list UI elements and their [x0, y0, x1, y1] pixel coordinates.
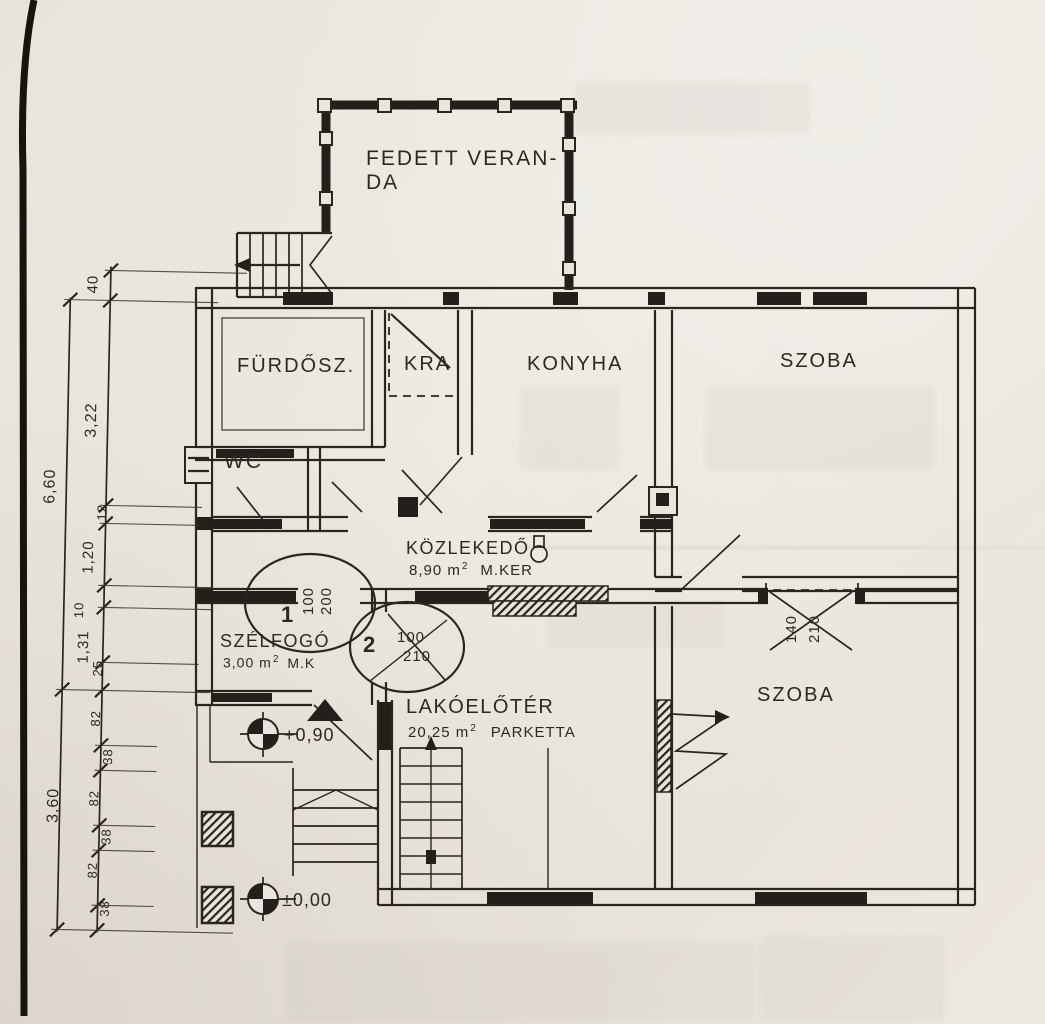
dim-660: 6,60 — [41, 468, 59, 503]
door1-number: 1 — [281, 602, 294, 627]
interior-walls-upper — [195, 310, 677, 577]
room-label-pantry: KRA — [404, 353, 451, 376]
dim-40: 40 — [84, 275, 101, 294]
hall-area-sup: 2 — [462, 561, 469, 572]
door3-width: 140 — [783, 615, 800, 643]
door1-height: 200 — [318, 587, 335, 615]
door2-height: 210 — [403, 648, 431, 665]
corridor-top-wall — [212, 457, 672, 531]
lamp-icon — [531, 536, 547, 562]
windbreak-area-sup: 2 — [273, 654, 280, 665]
room-label-hall: KÖZLEKEDŐ — [406, 538, 530, 559]
dim-38: 38 — [98, 828, 113, 845]
floor-plan-page: 40 3,22 12 1,20 10 1,31 25 6,60 3,60 82 … — [0, 0, 1045, 1024]
dim-82: 82 — [88, 710, 103, 727]
dim-38: 38 — [100, 748, 115, 765]
dim-38: 38 — [97, 900, 112, 917]
room-label-veranda: FEDETT VERAN- DA — [366, 147, 558, 195]
dim-131: 1,31 — [75, 630, 93, 664]
room-label-room-top: SZOBA — [780, 350, 858, 373]
room-label-room-bottom: SZOBA — [757, 684, 835, 707]
dim-82: 82 — [85, 862, 100, 879]
door2-number: 2 — [363, 632, 376, 657]
windbreak-finish: M.K — [287, 655, 315, 671]
hall-area-value: 8,90 m — [409, 562, 461, 579]
room-label-foyer: LAKÓELŐTÉR — [406, 696, 554, 719]
hall-finish: M.KER — [480, 562, 533, 579]
room-label-windbreak: SZÉLFOGÓ — [220, 631, 330, 652]
room-label-wc: WC — [224, 450, 263, 474]
dim-25: 25 — [90, 660, 105, 677]
hall-area: 8,90 m2M.KER — [409, 561, 533, 579]
foyer-finish: PARKETTA — [491, 724, 576, 741]
foyer-area-value: 20,25 m — [408, 724, 469, 741]
page-edge — [22, 0, 34, 1016]
room-label-bathroom: FÜRDŐSZ. — [237, 355, 355, 378]
level-entry: +0,90 — [284, 725, 335, 745]
room-label-kitchen: KONYHA — [527, 353, 623, 376]
dim-12: 12 — [94, 504, 109, 521]
bottom-room-wall — [655, 606, 730, 889]
veranda-line2: DA — [366, 171, 558, 195]
dim-82: 82 — [86, 790, 101, 807]
veranda-line1: FEDETT VERAN- — [366, 147, 558, 171]
windbreak-area: 3,00 m2M.K — [223, 654, 315, 671]
dim-360: 3,60 — [45, 788, 63, 823]
door3-height: 210 — [806, 615, 823, 643]
level-ground: ±0,00 — [282, 890, 332, 910]
foyer-area-sup: 2 — [470, 723, 477, 734]
dim-10: 10 — [71, 601, 86, 618]
dim-322: 3,22 — [83, 402, 101, 437]
dim-120: 1,20 — [80, 540, 98, 574]
foyer-area: 20,25 m2PARKETTA — [408, 723, 576, 741]
windbreak-area-value: 3,00 m — [223, 655, 272, 671]
door1-width: 100 — [300, 587, 317, 615]
door2-width: 100 — [397, 629, 425, 646]
